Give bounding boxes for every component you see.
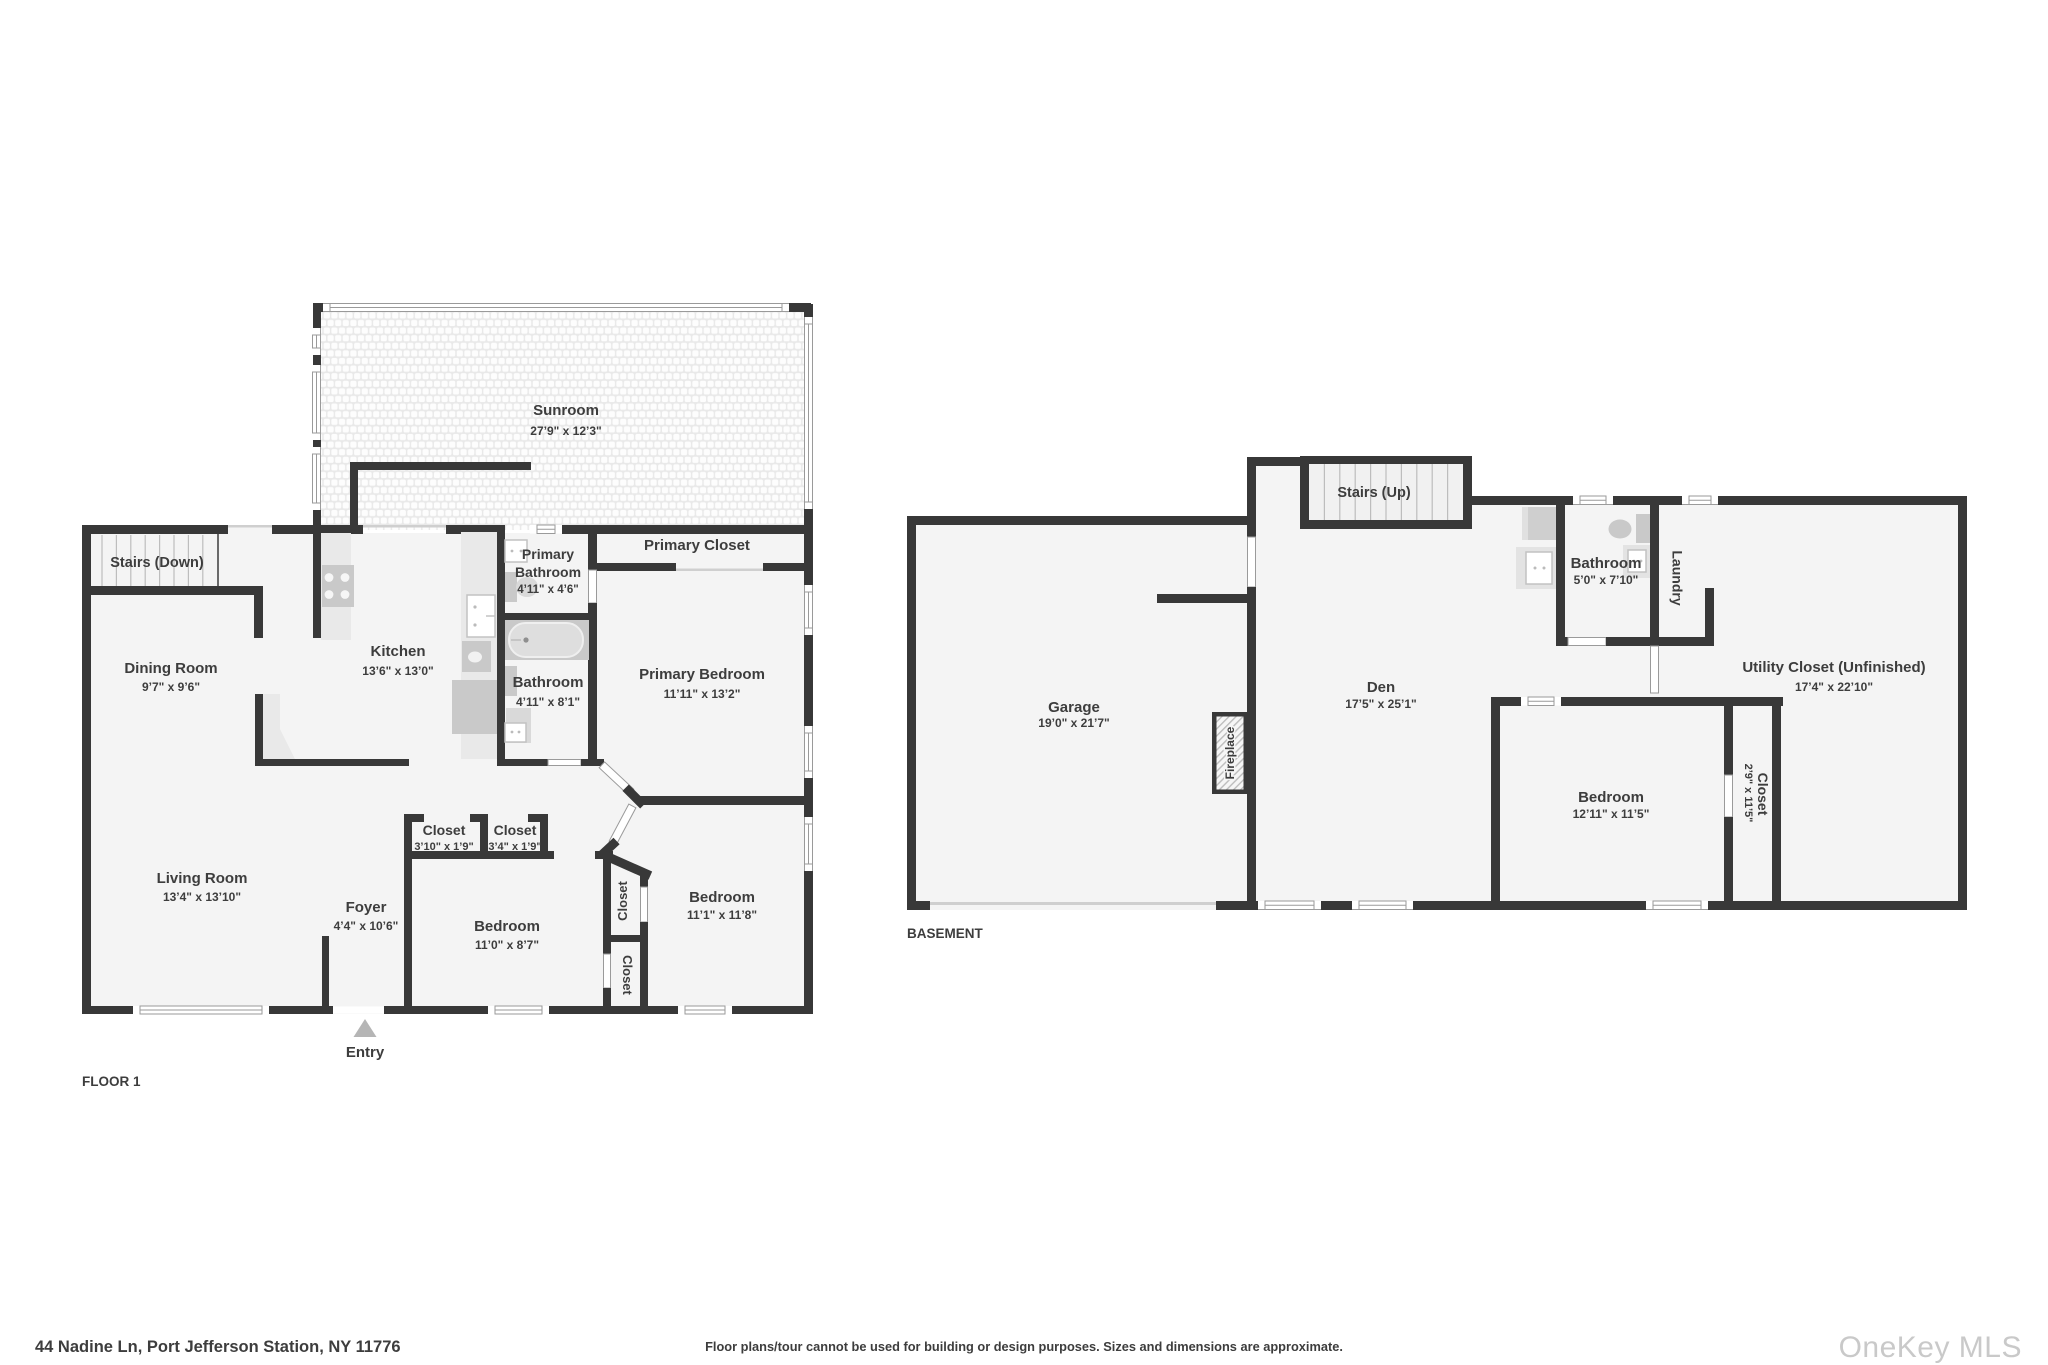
svg-text:Stairs (Down): Stairs (Down) [110, 555, 204, 571]
svg-text:Closet: Closet [615, 880, 630, 920]
svg-text:Primary: Primary [522, 546, 574, 562]
svg-text:44 Nadine Ln, Port Jefferson S: 44 Nadine Ln, Port Jefferson Station, NY… [35, 1338, 401, 1356]
svg-text:3’10" x 1’9": 3’10" x 1’9" [414, 841, 473, 853]
svg-text:Den: Den [1367, 679, 1395, 696]
svg-text:Sunroom: Sunroom [533, 402, 599, 419]
svg-text:Bedroom: Bedroom [689, 889, 755, 906]
svg-text:11’11" x 13’2": 11’11" x 13’2" [664, 687, 741, 701]
svg-text:OneKey MLS: OneKey MLS [1839, 1331, 2022, 1364]
svg-text:Floor plans/tour cannot be use: Floor plans/tour cannot be used for buil… [705, 1339, 1343, 1354]
svg-text:Garage: Garage [1048, 699, 1100, 716]
svg-text:13’6" x 13’0": 13’6" x 13’0" [362, 664, 433, 678]
svg-text:Bathroom: Bathroom [515, 564, 581, 580]
svg-text:Kitchen: Kitchen [370, 643, 425, 660]
svg-text:4’11" x 4’6": 4’11" x 4’6" [517, 584, 578, 596]
svg-text:Bedroom: Bedroom [1578, 789, 1644, 806]
svg-text:Utility Closet (Unfinished): Utility Closet (Unfinished) [1742, 659, 1925, 676]
svg-text:Living Room: Living Room [157, 870, 248, 887]
svg-text:9’7" x 9’6": 9’7" x 9’6" [142, 680, 200, 694]
svg-text:5’0" x 7’10": 5’0" x 7’10" [1574, 573, 1639, 587]
svg-text:Primary Bedroom: Primary Bedroom [639, 666, 765, 683]
svg-text:11’1" x 11’8": 11’1" x 11’8" [687, 908, 757, 922]
svg-text:Fireplace: Fireplace [1223, 726, 1237, 779]
svg-text:Closet: Closet [620, 955, 635, 995]
svg-text:2’9" x 11’5": 2’9" x 11’5" [1742, 764, 1754, 823]
svg-text:27’9" x 12’3": 27’9" x 12’3" [530, 424, 601, 438]
svg-text:Entry: Entry [346, 1044, 385, 1061]
svg-text:4’11" x 8’1": 4’11" x 8’1" [516, 695, 580, 709]
svg-text:Primary Closet: Primary Closet [644, 537, 750, 554]
svg-text:19’0" x 21’7": 19’0" x 21’7" [1038, 716, 1109, 730]
svg-text:11’0" x 8’7": 11’0" x 8’7" [475, 938, 539, 952]
svg-text:Foyer: Foyer [346, 899, 387, 916]
svg-text:Bedroom: Bedroom [474, 918, 540, 935]
svg-text:12’11" x 11’5": 12’11" x 11’5" [1573, 807, 1650, 821]
svg-text:BASEMENT: BASEMENT [907, 926, 984, 941]
svg-text:17’5" x 25’1": 17’5" x 25’1" [1345, 697, 1416, 711]
svg-text:Bathroom: Bathroom [1571, 555, 1642, 572]
svg-text:Closet: Closet [1755, 773, 1771, 816]
svg-text:Stairs (Up): Stairs (Up) [1337, 485, 1410, 501]
svg-text:Bathroom: Bathroom [513, 674, 584, 691]
svg-text:Closet: Closet [494, 822, 537, 838]
svg-text:Closet: Closet [423, 822, 466, 838]
svg-text:4’4" x 10’6": 4’4" x 10’6" [334, 919, 399, 933]
svg-text:3’4" x 1’9": 3’4" x 1’9" [488, 841, 541, 853]
svg-text:13’4" x 13’10": 13’4" x 13’10" [163, 890, 241, 904]
svg-text:17’4" x 22’10": 17’4" x 22’10" [1795, 680, 1873, 694]
svg-text:FLOOR 1: FLOOR 1 [82, 1074, 141, 1089]
svg-text:Laundry: Laundry [1670, 550, 1686, 605]
svg-text:Dining Room: Dining Room [124, 660, 217, 677]
